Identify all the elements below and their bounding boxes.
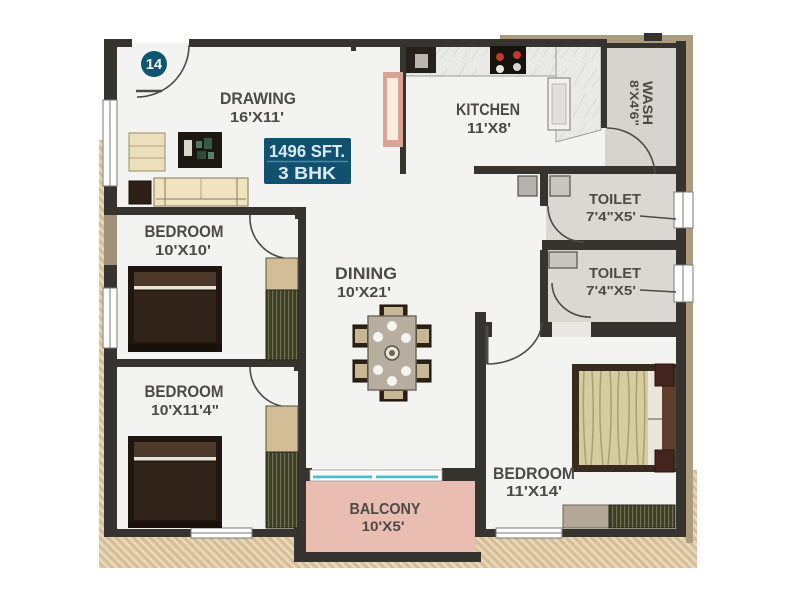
svg-text:BEDROOM: BEDROOM [493, 464, 575, 483]
svg-text:11'X14': 11'X14' [506, 483, 562, 500]
svg-text:8'X4'6": 8'X4'6" [627, 80, 641, 126]
svg-text:DINING: DINING [335, 264, 397, 283]
svg-text:KITCHEN: KITCHEN [456, 100, 520, 119]
svg-text:16'X11': 16'X11' [230, 109, 284, 126]
svg-text:7'4"X5': 7'4"X5' [586, 210, 636, 224]
svg-text:1496 SFT.: 1496 SFT. [269, 141, 345, 161]
svg-text:10'X11'4": 10'X11'4" [151, 402, 219, 419]
svg-text:TOILET: TOILET [589, 192, 641, 208]
svg-text:TOILET: TOILET [589, 266, 641, 282]
svg-text:BEDROOM: BEDROOM [145, 222, 224, 241]
svg-text:10'X21': 10'X21' [337, 284, 391, 301]
svg-text:10'X5': 10'X5' [362, 518, 405, 534]
svg-text:11'X8': 11'X8' [467, 120, 511, 137]
svg-text:BEDROOM: BEDROOM [145, 382, 224, 401]
svg-text:DRAWING: DRAWING [220, 89, 296, 108]
svg-text:14: 14 [146, 57, 162, 73]
svg-text:BALCONY: BALCONY [350, 501, 421, 518]
svg-text:3 BHK: 3 BHK [278, 163, 336, 183]
svg-text:WASH: WASH [640, 81, 656, 125]
svg-text:7'4"X5': 7'4"X5' [586, 284, 636, 298]
svg-text:10'X10': 10'X10' [155, 242, 211, 259]
